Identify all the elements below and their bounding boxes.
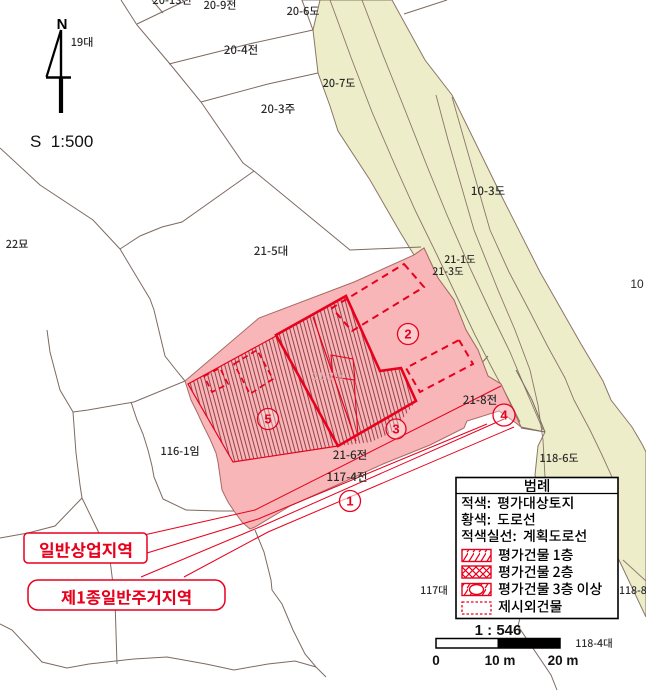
svg-text:1 : 546: 1 : 546 — [475, 622, 522, 639]
svg-text:10 m: 10 m — [485, 653, 516, 668]
svg-text:5: 5 — [264, 412, 271, 427]
svg-text:1: 1 — [346, 494, 353, 509]
svg-text:4: 4 — [500, 408, 508, 423]
svg-text:3: 3 — [392, 422, 399, 437]
svg-text:10: 10 — [630, 277, 644, 291]
svg-text:2: 2 — [404, 327, 411, 342]
svg-text:S 1:500: S 1:500 — [30, 132, 93, 151]
svg-text:20 m: 20 m — [548, 653, 579, 668]
svg-text:0: 0 — [432, 653, 440, 668]
